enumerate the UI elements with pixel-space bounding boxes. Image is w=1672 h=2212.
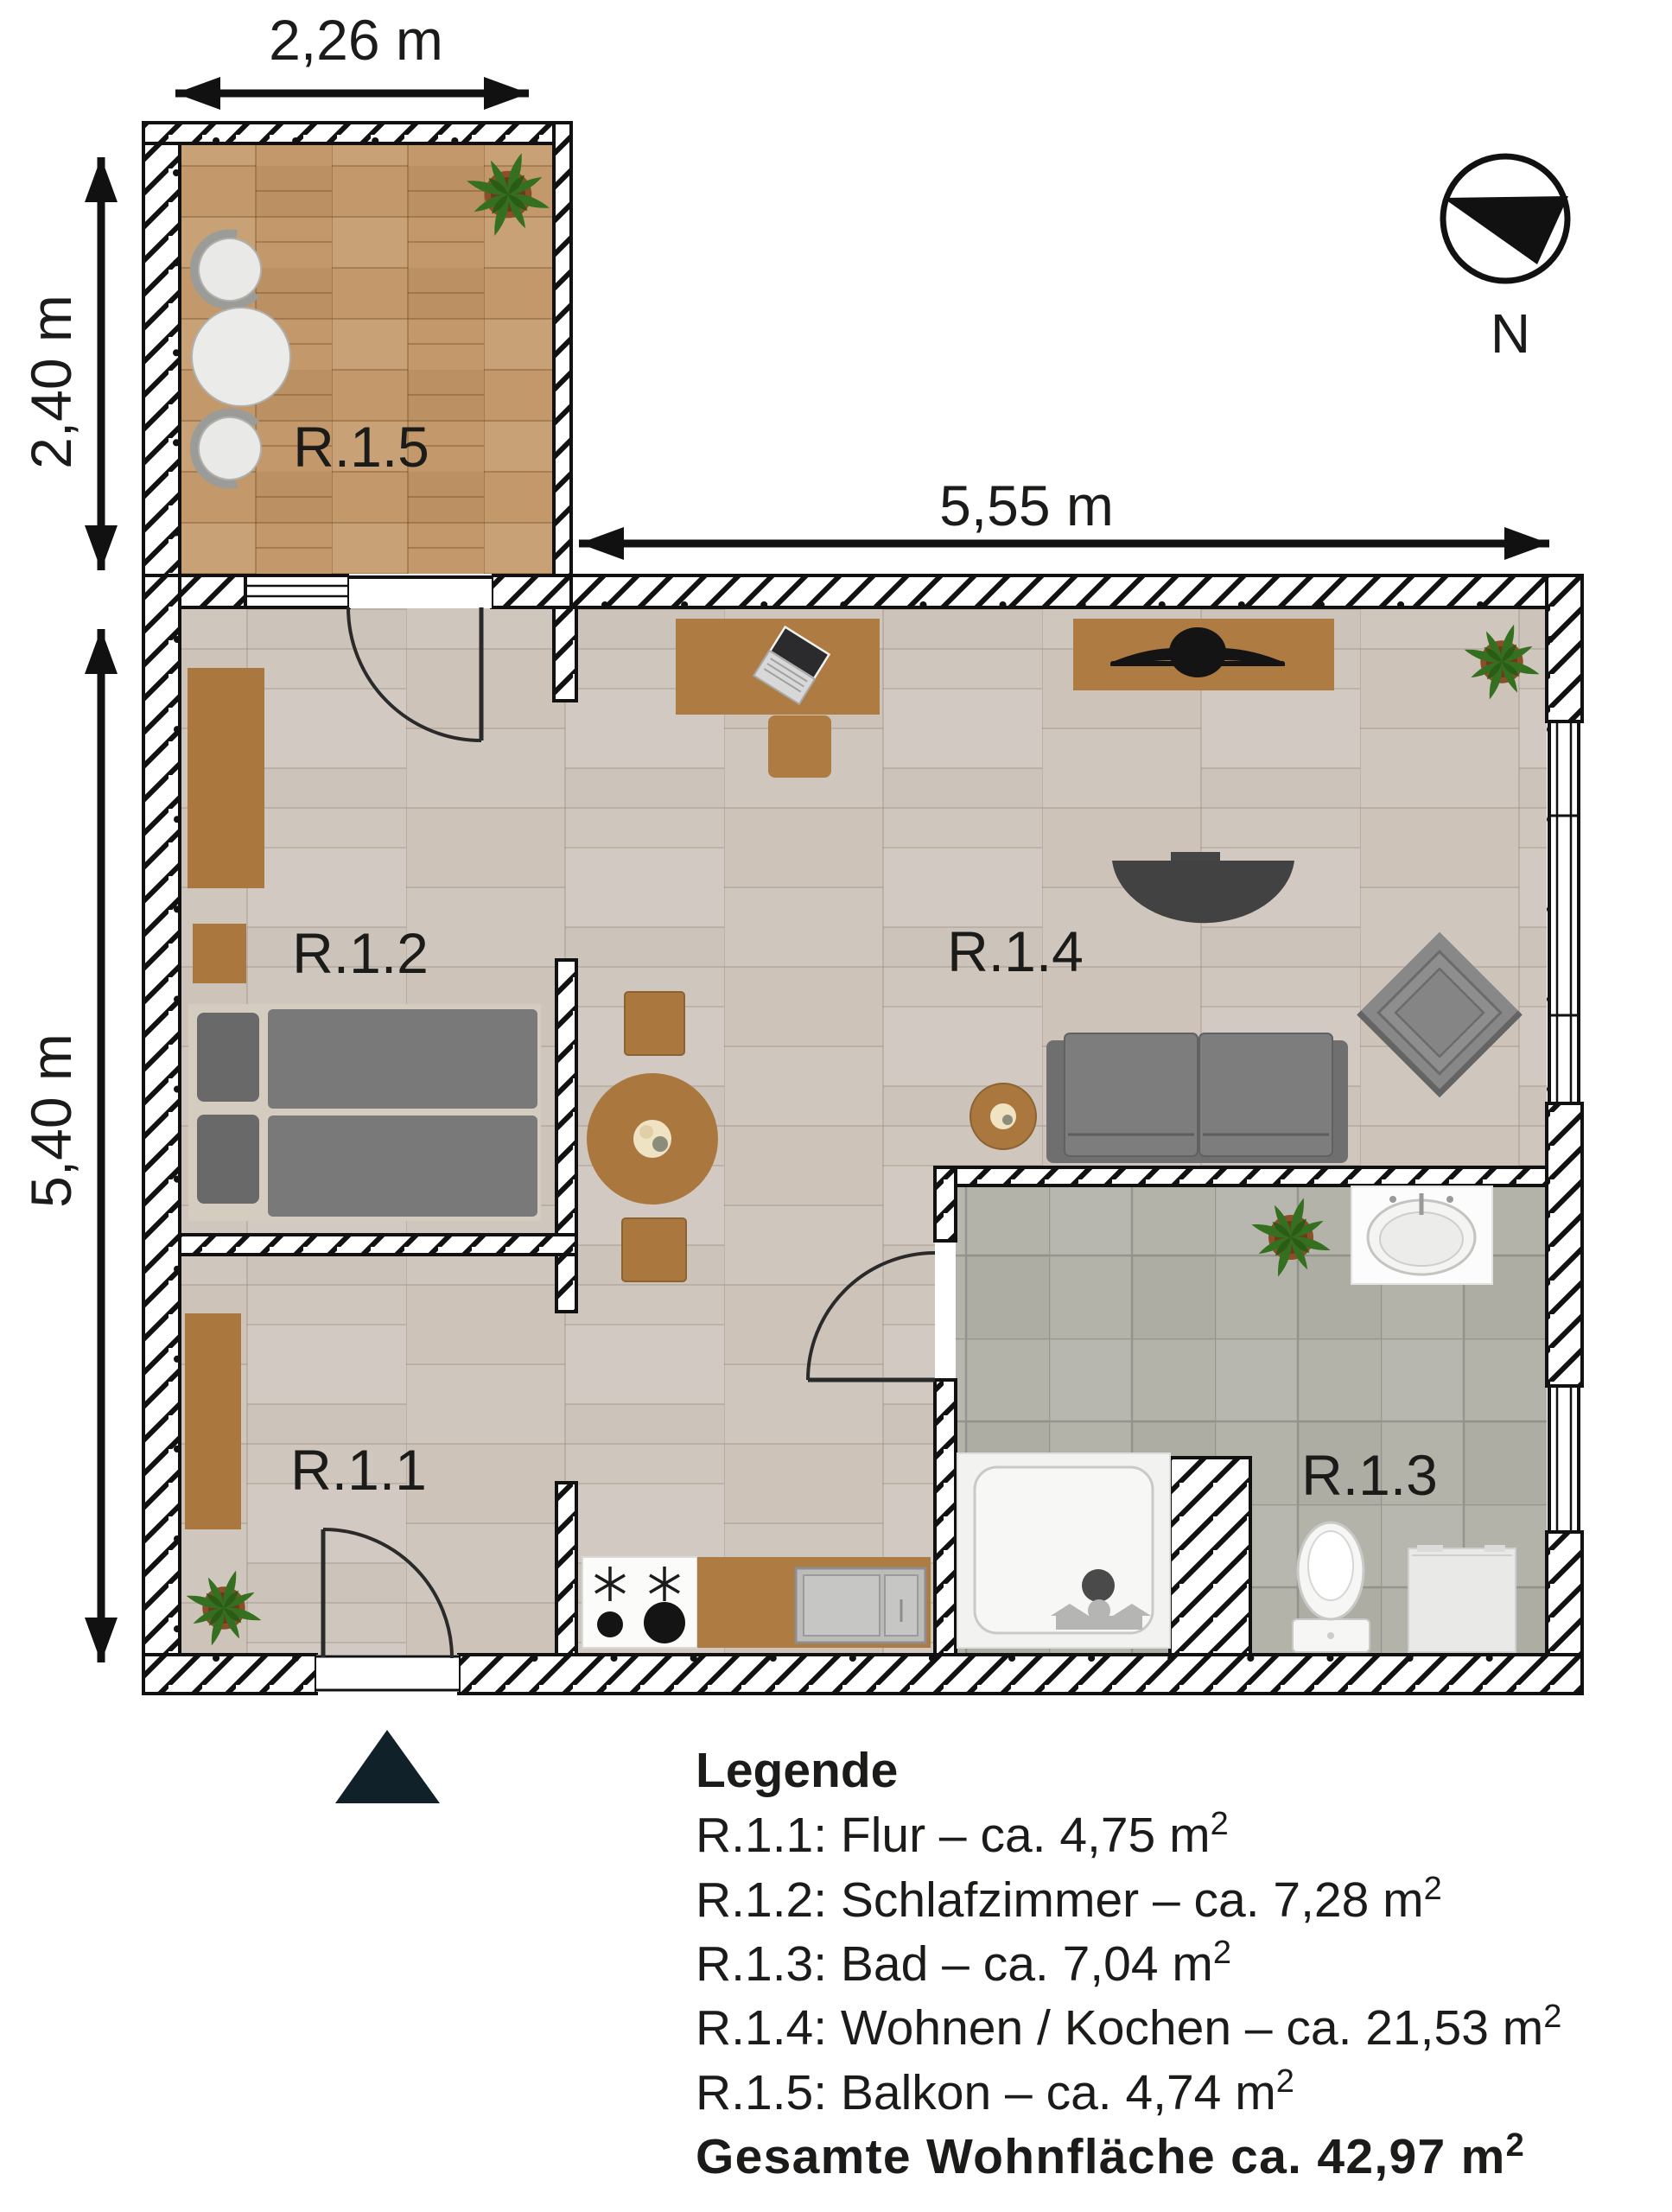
- svg-text:5,40 m: 5,40 m: [19, 1033, 83, 1208]
- svg-text:R.1.4: R.1.4: [947, 919, 1084, 983]
- svg-text:R.1.5: R.1.5: [293, 415, 429, 479]
- svg-text:R.1.3: R.1.3: [1301, 1443, 1438, 1507]
- svg-text:R.1.5: Balkon – ca. 4,74 m2: R.1.5: Balkon – ca. 4,74 m2: [696, 2063, 1294, 2120]
- svg-text:Gesamte Wohnfläche ca. 42,97 m: Gesamte Wohnfläche ca. 42,97 m2: [696, 2127, 1525, 2184]
- svg-text:5,55 m: 5,55 m: [939, 474, 1114, 537]
- svg-text:R.1.2: R.1.2: [292, 921, 429, 985]
- svg-text:2,40 m: 2,40 m: [19, 295, 83, 469]
- svg-text:R.1.3: Bad – ca. 7,04 m2: R.1.3: Bad – ca. 7,04 m2: [696, 1935, 1231, 1992]
- svg-text:N: N: [1491, 302, 1530, 365]
- svg-text:R.1.2: Schlafzimmer – ca. 7,28: R.1.2: Schlafzimmer – ca. 7,28 m2: [696, 1871, 1442, 1928]
- svg-text:R.1.1: Flur – ca. 4,75 m2: R.1.1: Flur – ca. 4,75 m2: [696, 1806, 1229, 1863]
- svg-text:Legende: Legende: [696, 1743, 898, 1798]
- svg-text:R.1.4: Wohnen / Kochen – ca. 2: R.1.4: Wohnen / Kochen – ca. 21,53 m2: [696, 1999, 1561, 2056]
- svg-text:R.1.1: R.1.1: [290, 1438, 427, 1502]
- svg-text:2,26 m: 2,26 m: [269, 8, 443, 72]
